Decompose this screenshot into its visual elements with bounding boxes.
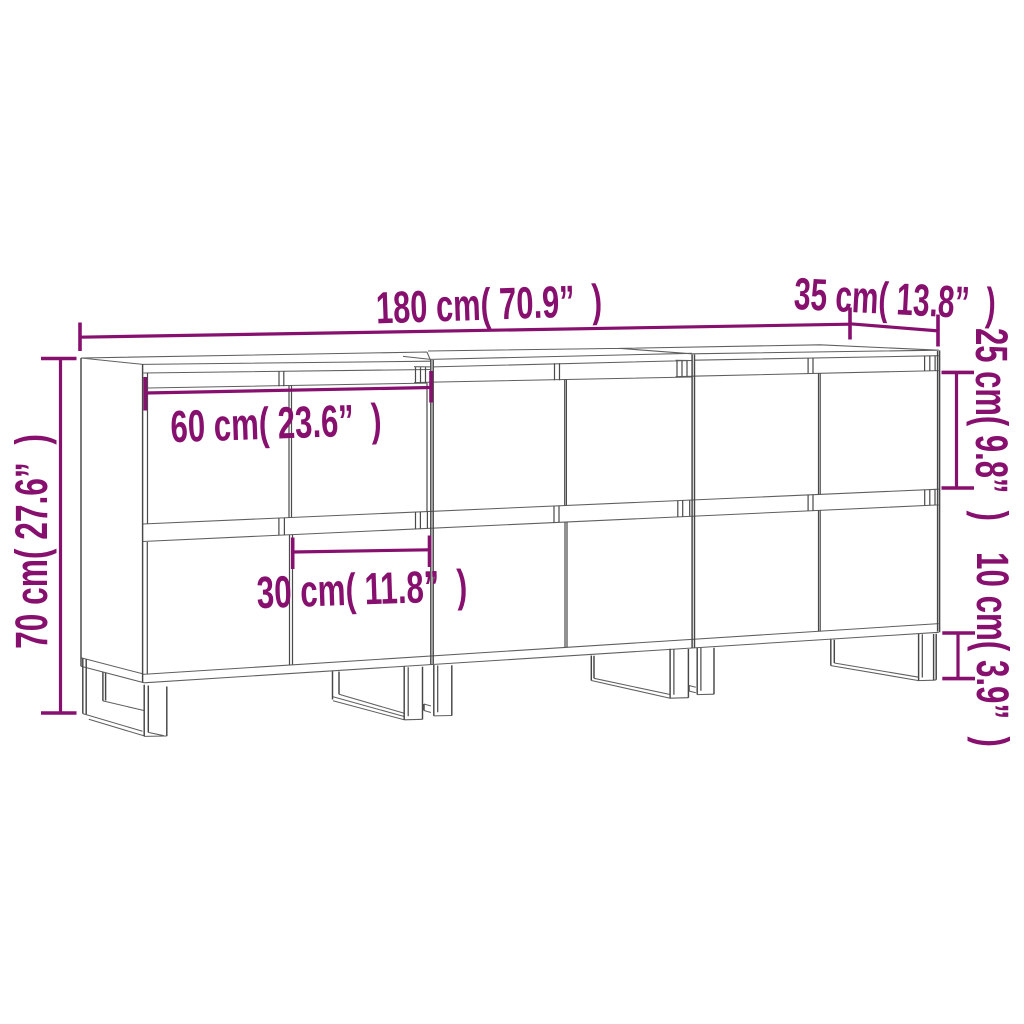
svg-text:10 cm( 3.9” ): 10 cm( 3.9” ) xyxy=(967,552,1017,747)
svg-text:70 cm( 27.6” ): 70 cm( 27.6” ) xyxy=(8,434,58,649)
svg-text:60 cm( 23.6” ): 60 cm( 23.6” ) xyxy=(170,395,383,452)
svg-text:30 cm( 11.8” ): 30 cm( 11.8” ) xyxy=(256,561,468,618)
svg-text:180 cm( 70.9” ): 180 cm( 70.9” ) xyxy=(375,276,603,334)
svg-text:25 cm( 9.8” ): 25 cm( 9.8” ) xyxy=(965,328,1015,521)
svg-text:35 cm( 13.8” ): 35 cm( 13.8” ) xyxy=(793,269,997,330)
